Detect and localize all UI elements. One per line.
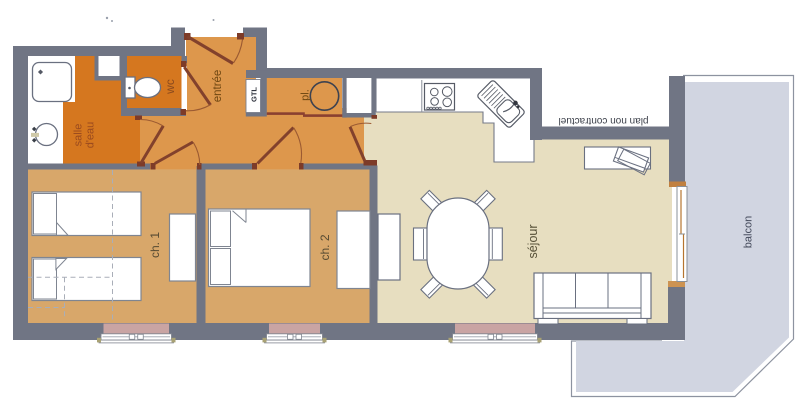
svg-text:entrée: entrée [212,70,224,103]
svg-text:ch. 2: ch. 2 [318,234,332,260]
svg-text:ch. 1: ch. 1 [148,232,162,258]
svg-text:d'eau: d'eau [85,122,97,149]
svg-text:wc: wc [163,79,177,95]
svg-text:séjour: séjour [526,224,540,258]
svg-text:GTL: GTL [250,87,259,102]
svg-text:salle: salle [73,124,85,147]
svg-text:pl.: pl. [300,89,312,101]
svg-text:plan non contractuel: plan non contractuel [558,115,648,126]
svg-text:balcon: balcon [743,216,755,248]
